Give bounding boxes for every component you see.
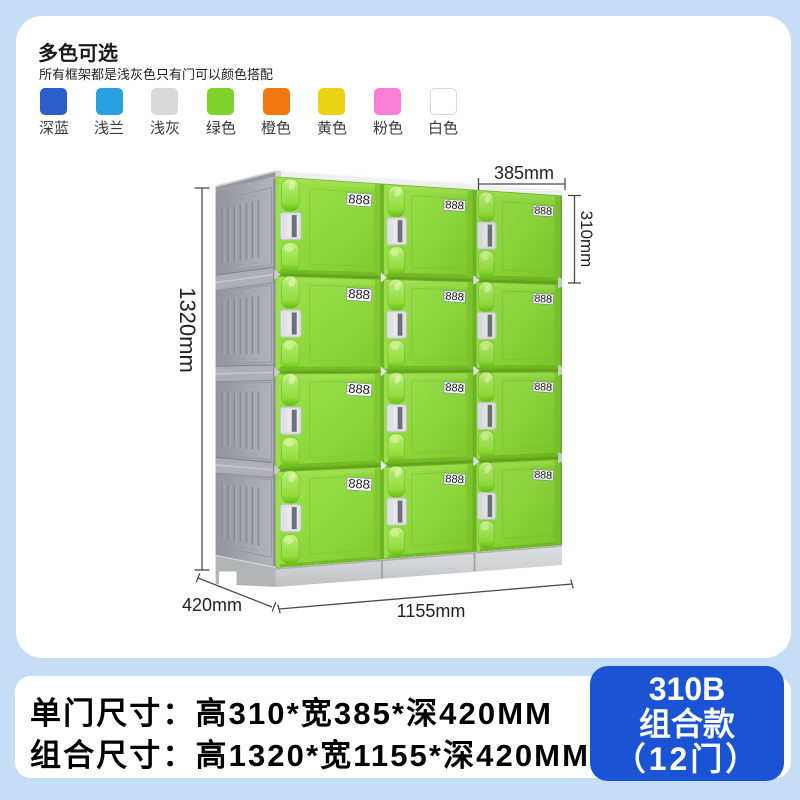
svg-text:310mm: 310mm (577, 211, 596, 268)
svg-text:1320mm: 1320mm (175, 287, 200, 373)
svg-text:1155mm: 1155mm (397, 601, 466, 621)
svg-text:385mm: 385mm (494, 163, 554, 183)
svg-text:420mm: 420mm (182, 595, 242, 615)
